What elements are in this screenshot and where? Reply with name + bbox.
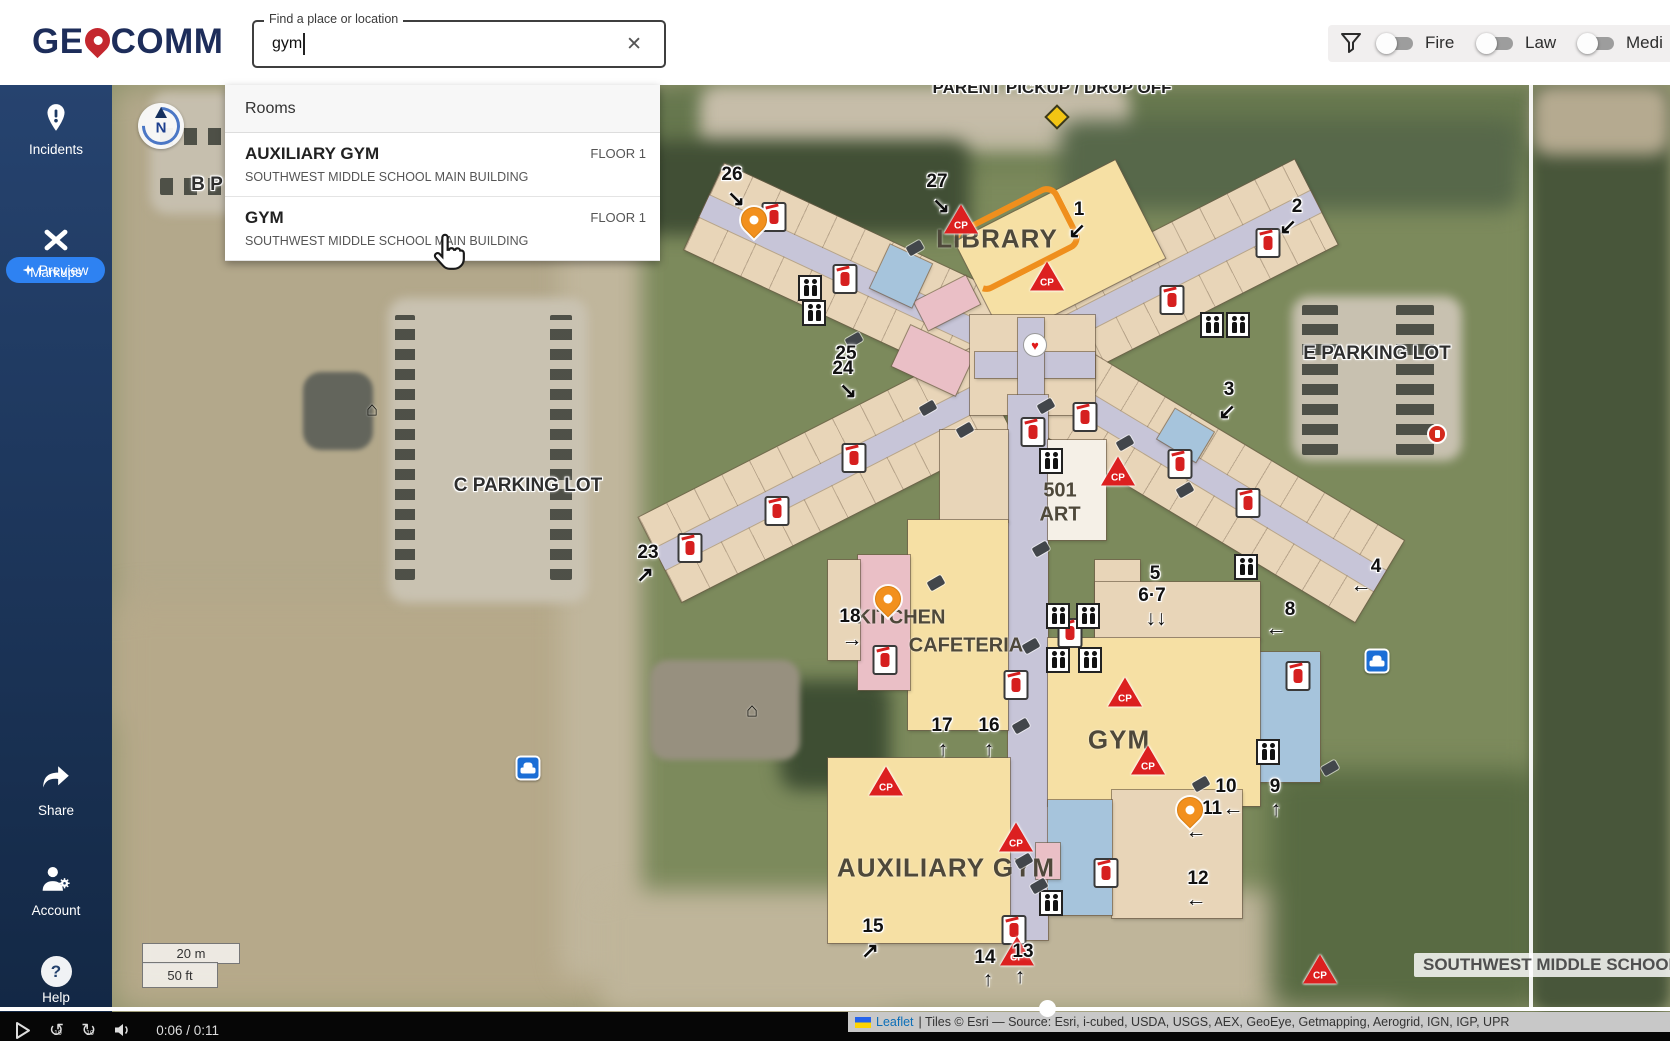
- parked-cars-row: [395, 315, 415, 580]
- hand-cursor-icon: [428, 232, 468, 276]
- extinguisher-body: [1168, 293, 1177, 307]
- person-figure: [1214, 322, 1219, 333]
- house-icon: ⌂: [366, 399, 378, 422]
- pin-shape: [736, 202, 773, 239]
- cp-label: CP: [1009, 840, 1023, 850]
- exit-arrow-9: ↑: [1271, 798, 1282, 822]
- incidents-pin-icon: [40, 102, 72, 134]
- person-figure: [1232, 322, 1237, 333]
- volume-icon[interactable]: [113, 1021, 133, 1039]
- exit-number-3: 3: [1224, 379, 1235, 401]
- video-controls: ↺10 ↻10 0:06 / 0:11: [14, 1019, 219, 1041]
- location-pin-icon[interactable]: [739, 205, 769, 237]
- help-question-glyph: ?: [51, 962, 61, 982]
- restroom-icon: [1039, 448, 1063, 474]
- parking-car-icon: [516, 756, 541, 781]
- filter-funnel-icon[interactable]: [1340, 32, 1362, 56]
- result-title: GYM: [245, 208, 646, 228]
- map-label-cafeteria: CAFETERIA: [909, 635, 1023, 658]
- extinguisher-body: [1081, 410, 1090, 424]
- help-question-icon: ?: [41, 956, 72, 987]
- fire-extinguisher-icon: [1286, 661, 1311, 691]
- school-name-badge: SOUTHWEST MIDDLE SCHOOL: [1414, 953, 1670, 977]
- person-figure: [1240, 564, 1245, 575]
- extinguisher-body: [850, 451, 859, 465]
- restroom-icon: [1078, 647, 1102, 673]
- cp-label: CP: [1111, 474, 1125, 484]
- play-button[interactable]: [14, 1020, 32, 1041]
- cp-label: CP: [1141, 763, 1155, 773]
- app-stage: PARENT PICKUP / DROP OFFB PC PARKING LOT…: [0, 0, 1670, 1041]
- cp-label: CP: [879, 784, 893, 794]
- exit-arrow-27: ↘: [932, 194, 950, 219]
- sidebar-item-account[interactable]: Account: [0, 863, 112, 918]
- extinguisher-body: [1012, 678, 1021, 692]
- extinguisher-body: [1244, 496, 1253, 510]
- forward-10-button[interactable]: ↻10: [81, 1021, 96, 1039]
- restroom-icon: [1226, 312, 1250, 338]
- leaflet-link[interactable]: Leaflet: [876, 1015, 914, 1029]
- exit-number-6·7: 6·7: [1138, 585, 1165, 607]
- extinguisher-body: [1176, 457, 1185, 471]
- result-auxiliary-gym[interactable]: AUXILIARY GYM FLOOR 1 SOUTHWEST MIDDLE S…: [225, 133, 660, 197]
- map-label-e-parking-lot: E PARKING LOT: [1303, 343, 1450, 365]
- map-label-art: ART: [1039, 504, 1080, 527]
- compass-n-label: N: [156, 120, 167, 137]
- medical-toggle-label: Medi: [1626, 33, 1663, 53]
- share-arrow-icon: [40, 763, 72, 795]
- law-toggle-knob[interactable]: [1476, 33, 1497, 54]
- search-field: Find a place or location ✕: [252, 20, 666, 68]
- person-figure: [1060, 613, 1065, 624]
- person-figure: [1270, 749, 1275, 760]
- terrain-patch: [388, 298, 588, 603]
- person-figure: [1206, 322, 1211, 333]
- law-toggle-label: Law: [1525, 33, 1556, 53]
- person-figure: [1060, 657, 1065, 668]
- exit-number-9: 9: [1270, 776, 1281, 798]
- exit-arrow-15: ↗: [861, 939, 879, 964]
- markups-pens-icon: [39, 223, 73, 257]
- exit-number-17: 17: [931, 715, 952, 737]
- person-figure: [808, 310, 813, 321]
- location-pin-icon[interactable]: [1175, 795, 1205, 827]
- markups-label: Markups: [0, 265, 112, 280]
- exit-arrow-4: ←: [1351, 574, 1372, 598]
- fire-extinguisher-icon: [1004, 670, 1029, 700]
- exit-number-4: 4: [1371, 556, 1382, 578]
- restroom-icon: [1039, 890, 1063, 916]
- exit-number-16: 16: [978, 715, 999, 737]
- terrain-patch: [650, 660, 800, 760]
- compass-north-arrow: [155, 107, 167, 118]
- medical-toggle-knob[interactable]: [1577, 33, 1598, 54]
- exit-number-23: 23: [637, 542, 658, 564]
- person-figure: [1053, 900, 1058, 911]
- law-toggle[interactable]: Law: [1479, 33, 1556, 53]
- building-block: [828, 758, 1010, 943]
- logo-pin-icon: [79, 22, 114, 57]
- incidents-label: Incidents: [0, 142, 112, 157]
- fire-extinguisher-icon: [1160, 285, 1185, 315]
- account-label: Account: [0, 903, 112, 918]
- restroom-icon: [798, 275, 822, 301]
- cp-label: CP: [1313, 972, 1327, 982]
- location-pin-icon[interactable]: [873, 584, 903, 616]
- restroom-icon: [1234, 554, 1258, 580]
- exit-arrow-17: ↑: [938, 738, 949, 762]
- logo-text-comm: COMM: [111, 22, 224, 62]
- video-timestamp: 0:06 / 0:11: [156, 1023, 219, 1038]
- person-figure: [1053, 458, 1058, 469]
- person-figure: [1082, 613, 1087, 624]
- person-figure: [1052, 613, 1057, 624]
- search-input[interactable]: [252, 20, 666, 68]
- person-figure: [1092, 657, 1097, 668]
- fire-extinguisher-icon: [1094, 858, 1119, 888]
- person-figure: [1045, 458, 1050, 469]
- scale-metric: 20 m: [142, 943, 240, 964]
- person-figure: [804, 285, 809, 296]
- exit-arrow-3: ↙: [1218, 400, 1236, 425]
- restroom-icon: [1256, 739, 1280, 765]
- fire-extinguisher-icon: [1073, 402, 1098, 432]
- exit-arrow-1: ↙: [1068, 219, 1086, 244]
- sidebar-item-help[interactable]: ? Help: [0, 956, 112, 1005]
- command-post-icon: CP: [869, 767, 903, 796]
- exit-arrow-16: ↑: [984, 738, 995, 762]
- sidebar-item-incidents[interactable]: Incidents: [0, 102, 112, 157]
- search-field-label: Find a place or location: [264, 12, 403, 26]
- exit-number-12: 12: [1187, 868, 1208, 890]
- sidebar: Incidents Preview Markups Share: [0, 85, 112, 1012]
- exit-number-24: 24: [832, 358, 853, 380]
- terrain-patch: [303, 372, 373, 450]
- share-label: Share: [0, 803, 112, 818]
- command-post-icon: CP: [1101, 457, 1135, 486]
- map-label-b-p: B P: [191, 174, 223, 196]
- exit-arrow-6·7: ↓↓: [1146, 607, 1167, 631]
- fire-extinguisher-icon: [873, 645, 898, 675]
- result-floor: FLOOR 1: [590, 210, 646, 225]
- exit-arrow-24: ↘: [839, 379, 857, 404]
- person-figure: [1052, 657, 1057, 668]
- command-post-icon: CP: [1108, 678, 1142, 707]
- person-figure: [1240, 322, 1245, 333]
- restroom-icon: [1200, 312, 1224, 338]
- fire-extinguisher-icon: [1236, 488, 1261, 518]
- rewind-10-button[interactable]: ↺10: [49, 1021, 64, 1039]
- aed-icon: ♥: [1023, 333, 1047, 357]
- person-figure: [1262, 749, 1267, 760]
- hydrant-icon: [1427, 424, 1447, 444]
- result-subtitle: SOUTHWEST MIDDLE SCHOOL MAIN BUILDING: [245, 170, 646, 184]
- sidebar-item-share[interactable]: Share: [0, 763, 112, 818]
- compass-icon: N: [138, 103, 184, 149]
- exit-arrow-12: ←: [1186, 888, 1207, 912]
- video-progress-bar[interactable]: [0, 1007, 1670, 1011]
- exit-arrow-13: ↑: [1015, 965, 1026, 989]
- result-title: AUXILIARY GYM: [245, 144, 646, 164]
- exit-arrow-2: ↙: [1279, 215, 1297, 240]
- scale-imperial: 50 ft: [142, 962, 218, 988]
- exit-arrow-23: ↗: [636, 563, 654, 588]
- person-figure: [1248, 564, 1253, 575]
- map-label-501: 501: [1043, 480, 1076, 503]
- extinguisher-body: [1294, 669, 1303, 683]
- fire-extinguisher-icon: [1256, 228, 1281, 258]
- parking-car-icon: [1365, 649, 1390, 674]
- pin-shape: [1172, 792, 1209, 829]
- extinguisher-body: [773, 504, 782, 518]
- extinguisher-body: [1010, 923, 1019, 937]
- pin-shape: [870, 581, 907, 618]
- extinguisher-body: [1029, 425, 1038, 439]
- restroom-icon: [802, 300, 826, 326]
- extinguisher-body: [1102, 866, 1111, 880]
- exit-number-15: 15: [862, 916, 883, 938]
- ukraine-flag-icon: [855, 1017, 871, 1028]
- video-progress-knob[interactable]: [1039, 1000, 1056, 1017]
- fire-extinguisher-icon: [833, 264, 858, 294]
- medical-toggle[interactable]: Medi: [1580, 33, 1663, 53]
- cp-label: CP: [1118, 695, 1132, 705]
- fire-extinguisher-icon: [678, 533, 703, 563]
- exit-arrow-14: ↑: [983, 968, 994, 992]
- person-figure: [1084, 657, 1089, 668]
- sidebar-item-markups[interactable]: Markups: [0, 223, 112, 280]
- person-figure: [816, 310, 821, 321]
- parked-cars-row: [1302, 305, 1338, 455]
- exit-number-27: 27: [926, 171, 947, 193]
- fire-extinguisher-icon: [842, 443, 867, 473]
- exit-number-14: 14: [974, 947, 995, 969]
- restroom-icon: [1046, 647, 1070, 673]
- exit-arrow-18: →: [842, 628, 863, 652]
- restroom-icon: [1046, 603, 1070, 629]
- help-label: Help: [0, 990, 112, 1005]
- command-post-icon: CP: [1030, 262, 1064, 291]
- fire-toggle-label: Fire: [1425, 33, 1454, 53]
- exit-number-18: 18: [839, 606, 860, 628]
- cp-label: CP: [1040, 279, 1054, 289]
- crossing-sign-icon: [1044, 104, 1069, 129]
- exit-arrow-11: ←: [1223, 797, 1244, 821]
- restroom-icon: [1076, 603, 1100, 629]
- results-section-header: Rooms: [225, 85, 660, 133]
- camera-icon: [1321, 760, 1340, 777]
- command-post-icon: CP: [999, 823, 1033, 852]
- medical-toggle-track[interactable]: [1580, 37, 1614, 50]
- command-post-icon: CP: [1303, 955, 1337, 984]
- person-figure: [1090, 613, 1095, 624]
- map-label-c-parking-lot: C PARKING LOT: [454, 475, 602, 497]
- map-attribution: Leaflet | Tiles © Esri — Source: Esri, i…: [848, 1012, 1670, 1032]
- extinguisher-body: [770, 210, 779, 224]
- extinguisher-body: [686, 541, 695, 555]
- result-floor: FLOOR 1: [590, 146, 646, 161]
- terrain-patch: [560, 200, 640, 980]
- clear-search-icon[interactable]: ✕: [620, 32, 648, 57]
- extinguisher-body: [1264, 236, 1273, 250]
- fire-extinguisher-icon: [765, 496, 790, 526]
- fire-extinguisher-icon: [1168, 449, 1193, 479]
- parked-cars-row: [550, 315, 572, 580]
- person-figure: [812, 285, 817, 296]
- exit-number-5: 5: [1150, 563, 1161, 585]
- exit-number-26: 26: [721, 164, 742, 186]
- fire-extinguisher-icon: [1021, 417, 1046, 447]
- fire-toggle-knob[interactable]: [1376, 33, 1397, 54]
- exit-arrow-8: ←: [1266, 617, 1287, 641]
- logo-text-ge: GE: [32, 22, 84, 62]
- building-block: [940, 430, 1008, 522]
- account-person-gear-icon: [40, 863, 72, 895]
- fire-toggle-track[interactable]: [1379, 37, 1413, 50]
- person-figure: [1045, 900, 1050, 911]
- building-block: [1095, 582, 1260, 640]
- attribution-text: | Tiles © Esri — Source: Esri, i-cubed, …: [919, 1015, 1510, 1029]
- exit-number-10: 10: [1215, 776, 1236, 798]
- exit-number-13: 13: [1012, 941, 1033, 963]
- video-divider-line: [1529, 85, 1533, 1007]
- layer-filter-panel: Fire Law Medi: [1328, 25, 1670, 62]
- house-icon: ⌂: [746, 700, 758, 723]
- geocomm-logo: GE COMM: [32, 22, 223, 62]
- command-post-icon: CP: [1131, 746, 1165, 775]
- fire-toggle[interactable]: Fire: [1379, 33, 1454, 53]
- law-toggle-track[interactable]: [1479, 37, 1513, 50]
- extinguisher-body: [881, 653, 890, 667]
- cp-label: CP: [954, 222, 968, 232]
- text-caret: [303, 33, 305, 55]
- extinguisher-body: [841, 272, 850, 286]
